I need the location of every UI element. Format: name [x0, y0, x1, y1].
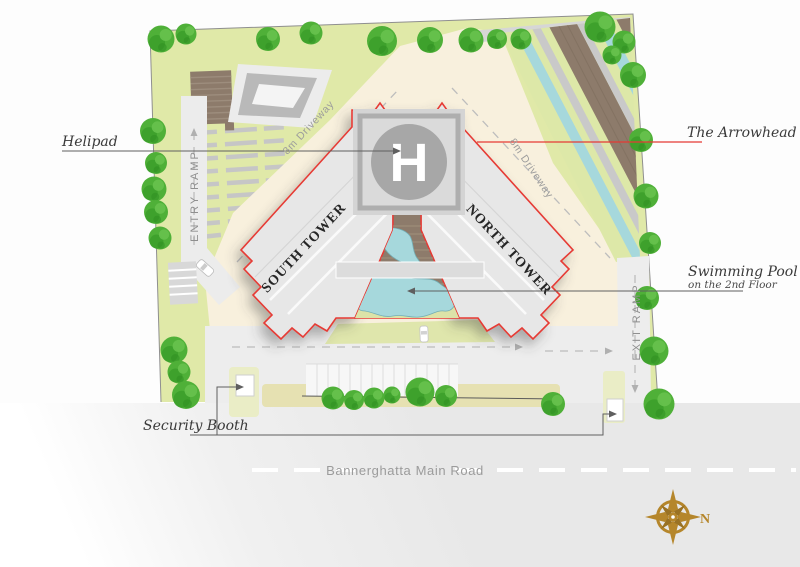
tree-icon [172, 381, 200, 409]
tree-icon [384, 387, 401, 404]
tree-icon [634, 184, 659, 209]
tree-icon [142, 177, 167, 202]
tree-icon [176, 24, 197, 45]
exit-ramp-label: EXIT RAMP [631, 283, 643, 360]
helipad: H [353, 109, 465, 215]
tree-icon [603, 46, 622, 65]
tree-icon [364, 388, 385, 409]
tree-icon [256, 27, 280, 51]
tree-icon [161, 337, 188, 364]
tree-icon [644, 389, 675, 420]
tree-icon [511, 29, 532, 50]
tree-icon [406, 378, 435, 407]
arrowhead-label: The Arrowhead [687, 125, 797, 141]
tree-icon [300, 22, 323, 45]
tree-icon [541, 392, 565, 416]
tree-icon [322, 387, 345, 410]
hatch-strip [168, 261, 198, 304]
tree-icon [344, 390, 364, 410]
tree-icon [140, 118, 166, 144]
site-plan: H N Helipad The Arro [0, 0, 800, 567]
tree-icon [585, 12, 616, 43]
tree-icon [639, 232, 661, 254]
helipad-label: Helipad [61, 134, 118, 150]
tree-icon [417, 27, 443, 53]
compass-north-label: N [700, 512, 710, 527]
tree-icon [435, 385, 457, 407]
main-road-label: Bannerghatta Main Road [326, 463, 484, 478]
tree-icon [168, 361, 191, 384]
tree-icon [487, 29, 507, 49]
main-road [0, 403, 800, 567]
tree-icon [629, 128, 653, 152]
entry-ramp-label: ENTRY RAMP [189, 150, 201, 242]
courtyard-walkway [336, 262, 484, 278]
security-booth-label: Security Booth [143, 418, 249, 434]
tree-icon [144, 200, 168, 224]
tree-icon [367, 26, 397, 56]
tree-icon [620, 62, 646, 88]
tree-icon [149, 227, 172, 250]
tree-icon [459, 28, 484, 53]
security-booth-2 [607, 399, 623, 421]
swimming-pool-label: Swimming Pool [688, 264, 798, 280]
tree-icon [145, 152, 167, 174]
tree-icon [148, 26, 175, 53]
helipad-h-marker: H [390, 133, 429, 193]
tree-icon [640, 337, 669, 366]
car-icon [420, 326, 429, 342]
swimming-pool-sublabel: on the 2nd Floor [688, 279, 778, 291]
